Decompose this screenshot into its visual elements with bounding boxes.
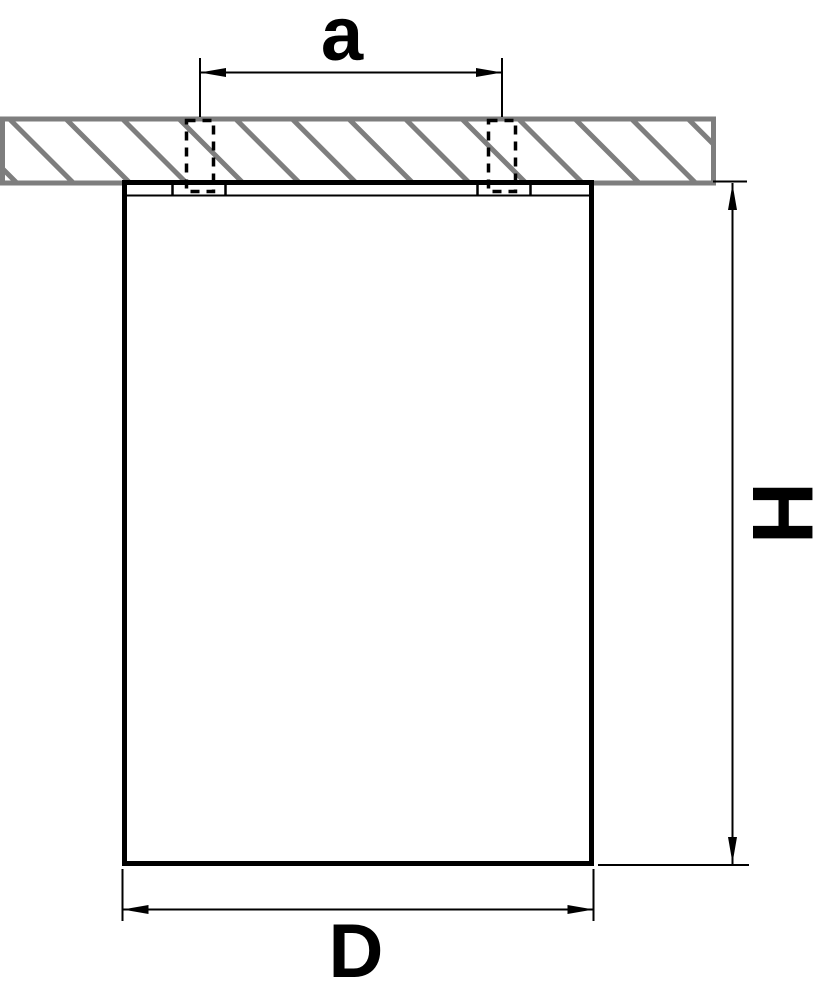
- dimension-h-label: H: [734, 482, 816, 544]
- dimension-h: H: [598, 182, 816, 866]
- arrow-up-icon: [728, 184, 737, 210]
- arrow-down-icon: [728, 837, 737, 863]
- ceiling-slab-section: [3, 119, 714, 183]
- arrow-left-icon: [200, 68, 226, 77]
- dimension-a-label: a: [321, 0, 364, 77]
- arrow-left-icon: [123, 905, 149, 914]
- arrow-right-icon: [476, 68, 502, 77]
- dimension-d-label: D: [329, 909, 384, 994]
- fixture-dimension-diagram: a H D: [0, 0, 816, 1000]
- fixture-body-outline: [125, 183, 592, 864]
- ceiling-slab-hatch: [3, 119, 714, 183]
- arrow-right-icon: [568, 905, 594, 914]
- dimension-a: a: [200, 0, 502, 117]
- fixture-body: [125, 183, 592, 864]
- technical-drawing-canvas: a H D: [0, 0, 816, 1000]
- dimension-d: D: [123, 869, 594, 994]
